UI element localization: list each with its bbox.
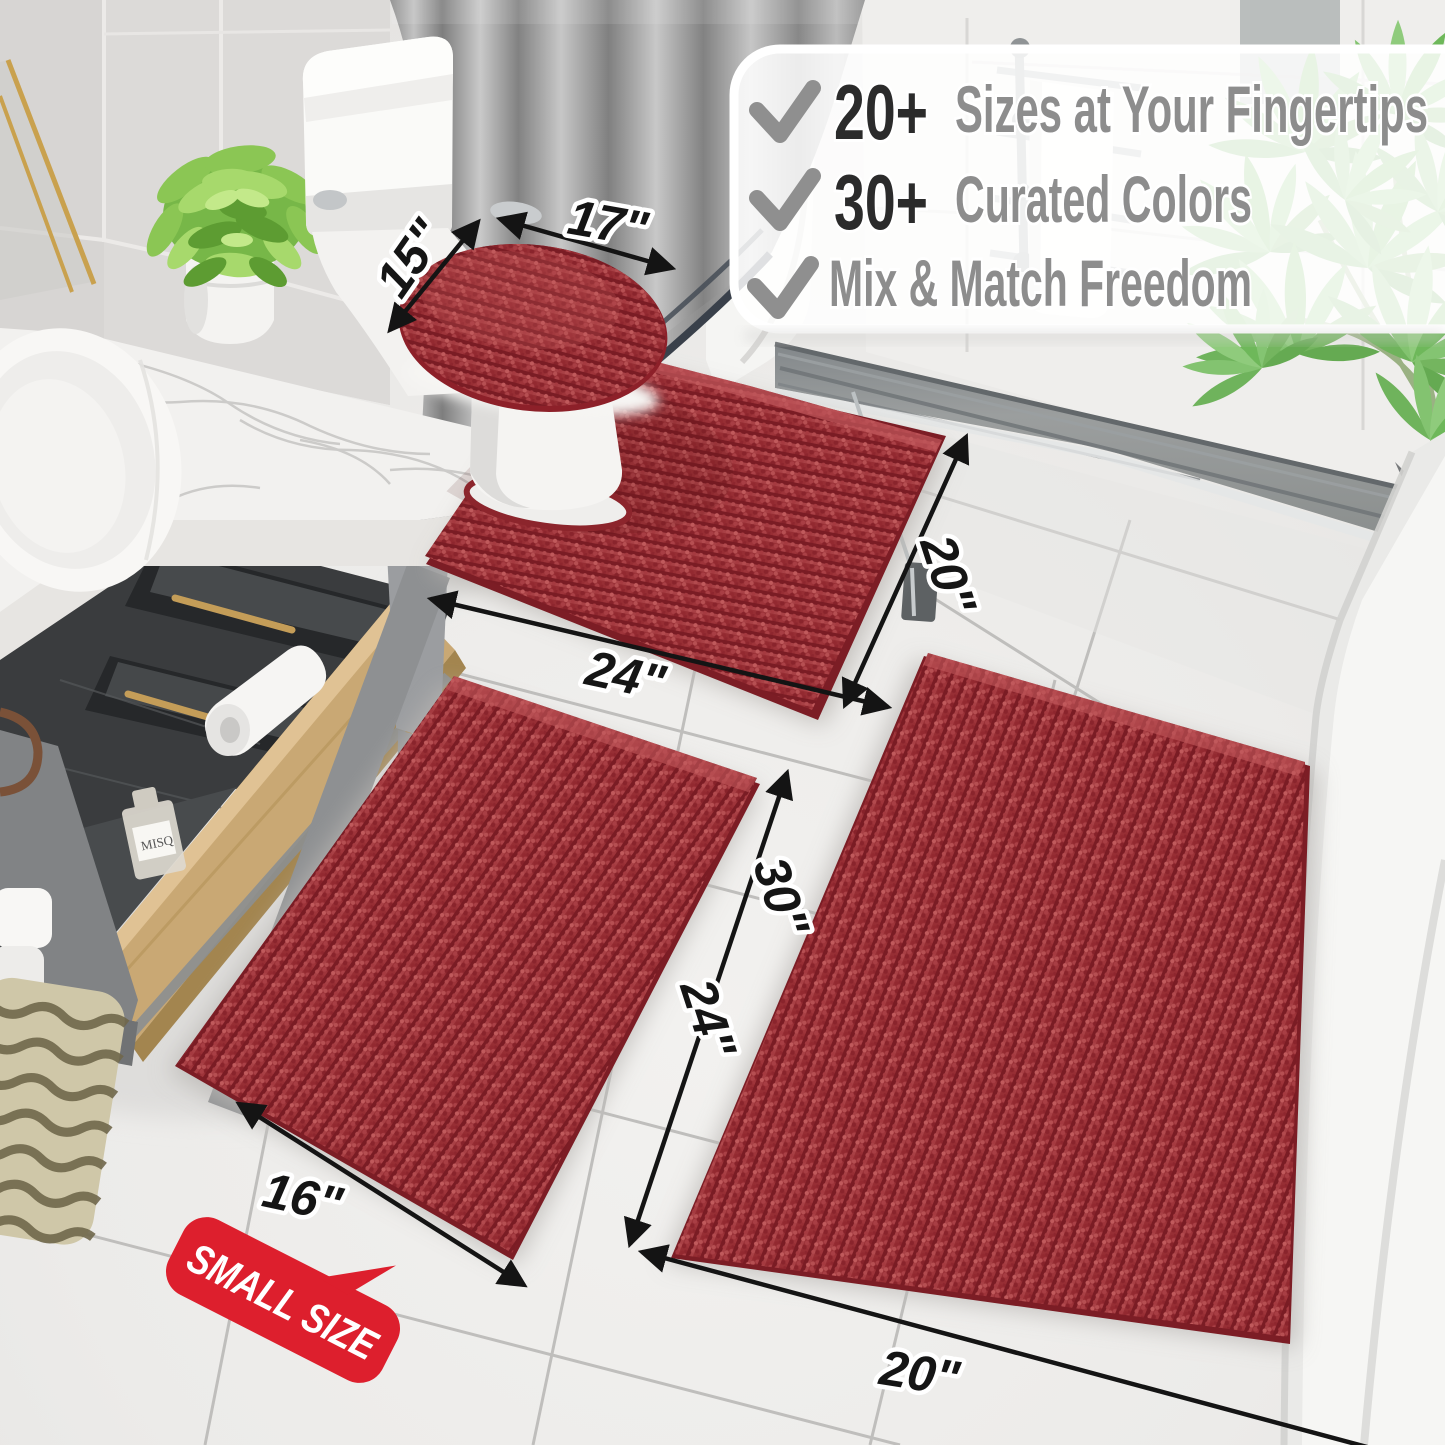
svg-text:Curated Colors: Curated Colors [955,162,1252,236]
svg-text:30+: 30+ [834,158,928,246]
svg-text:Mix & Match Freedom: Mix & Match Freedom [829,246,1252,320]
svg-text:Sizes at Your Fingertips: Sizes at Your Fingertips [955,72,1428,146]
svg-text:20+: 20+ [834,68,928,156]
